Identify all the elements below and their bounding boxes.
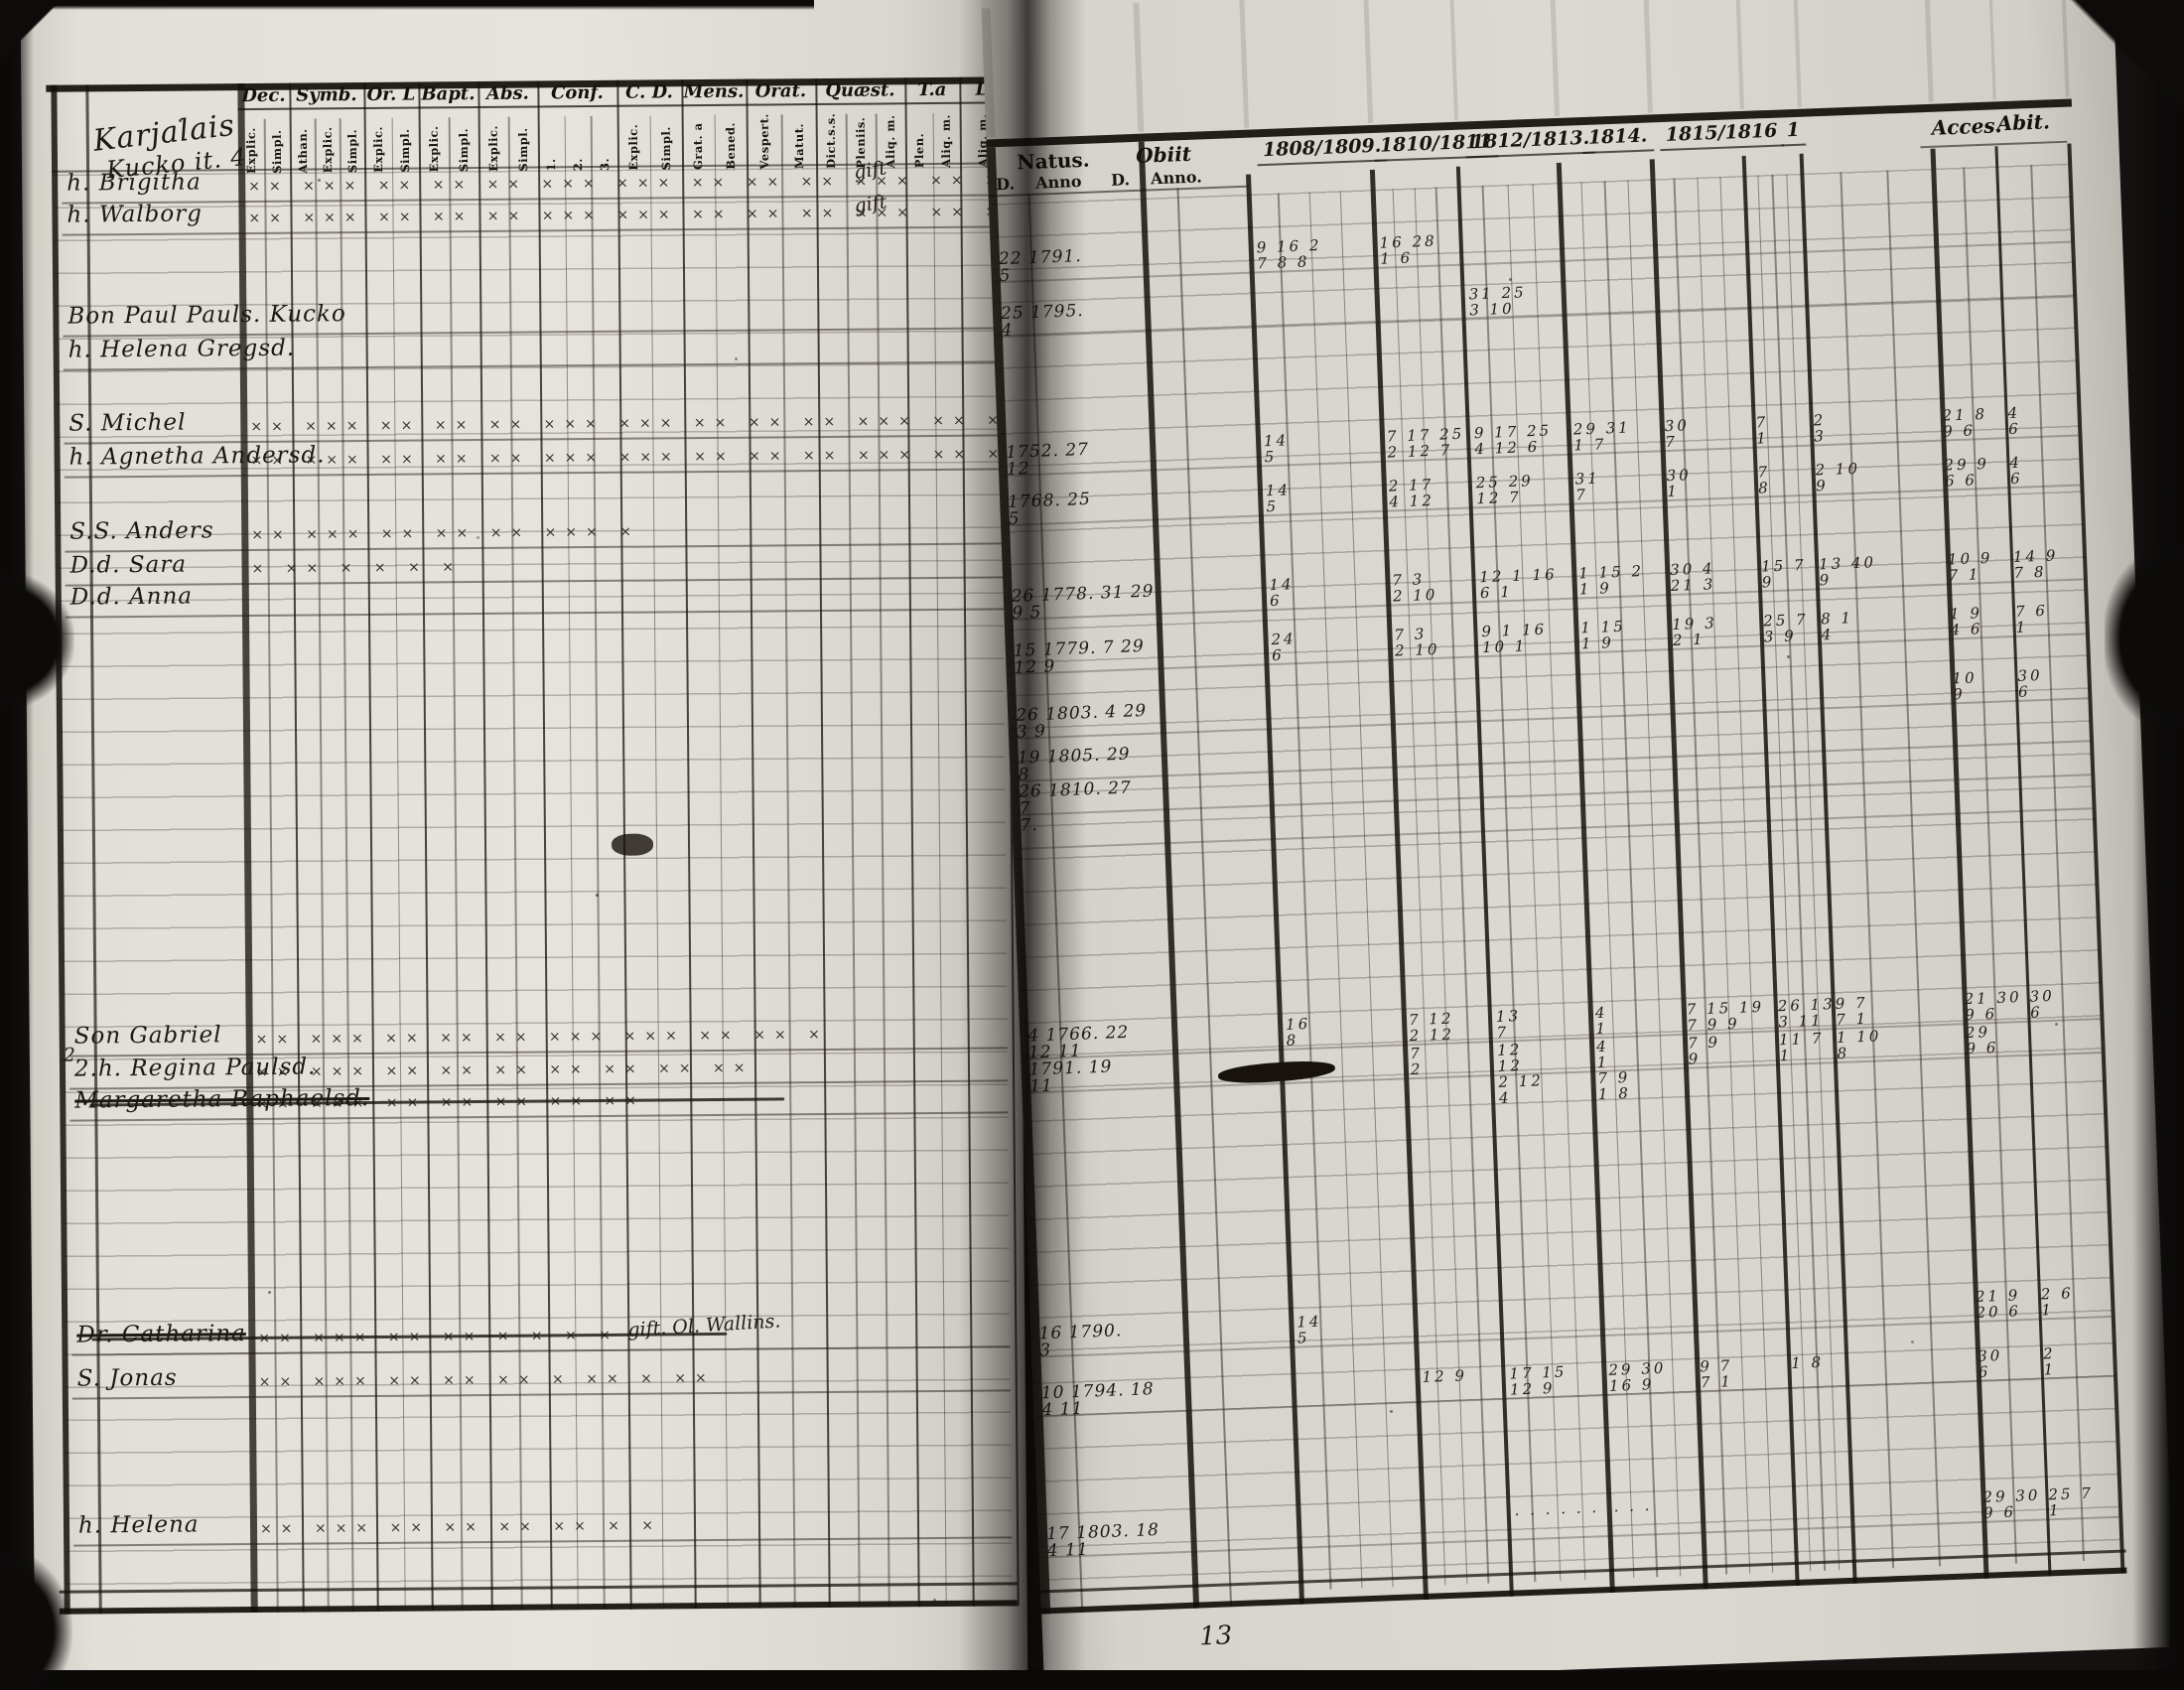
- natus-value: 7.: [1020, 817, 1038, 835]
- natus-value: 15 1779. 7 29 12 9: [1014, 638, 1146, 677]
- row-name: h. Helena: [78, 1512, 200, 1539]
- abit-value: 4 6: [2007, 405, 2021, 437]
- year-cell-value: 9 7 7 1: [1700, 1357, 1733, 1390]
- acces-value: 29 9 6: [1966, 1024, 1999, 1056]
- year-cell-value: 14 5: [1264, 432, 1290, 465]
- subcolumn-label: Explic.: [626, 109, 641, 171]
- column-label: Abs.: [478, 82, 537, 108]
- column-group-symb: Symb. Athan.Explic.Simpl.: [289, 84, 364, 185]
- ghost-rule: [1924, 0, 1934, 102]
- subcolumn-label: Simpl.: [658, 108, 673, 170]
- row-name: D.d. Sara: [69, 552, 187, 579]
- abit-value: 25 7 1: [2048, 1485, 2095, 1519]
- abit-value: 2 1: [2043, 1345, 2057, 1377]
- column-label: Bapt.: [418, 83, 478, 109]
- row-name: h. Walborg: [67, 201, 203, 227]
- natus-value: 16 1790. 3: [1038, 1323, 1123, 1359]
- column-group-ta: T.a Plen.Aliq. m.: [904, 79, 960, 179]
- year-cell-value: 12 1 16 6 1: [1479, 566, 1558, 601]
- subcolumn-label: Explic.: [486, 110, 501, 172]
- row-name: D.d. Anna: [70, 584, 193, 611]
- acces-value: 29 9 6 6: [1944, 456, 1990, 490]
- year-cell-value: 19 3 2 1: [1672, 615, 1718, 648]
- year-cell-value: 30 1: [1666, 467, 1692, 499]
- year-cell-value: 26 13 3 11: [1777, 996, 1836, 1030]
- row-marks: ×× ××× ×× ×× ×× ××× ×: [251, 524, 640, 543]
- abit-value: 7 6 1: [2015, 603, 2049, 635]
- ghost-rule: [1449, 0, 1458, 120]
- column-label: Mens.: [681, 81, 746, 107]
- year-cell-value: 24 6: [1271, 631, 1297, 663]
- year-cell-value: 7 12 2 12: [1409, 1010, 1455, 1044]
- right-page: Natus. D. Anno Obiit D. Anno. 1808/1809.…: [981, 0, 2175, 1689]
- year-cell-value: 4 1: [1596, 1039, 1610, 1070]
- year-cell-value: 7 15 19 7 9 9: [1687, 999, 1765, 1034]
- year-cell-value: 7 2: [1410, 1046, 1424, 1077]
- row-name: h. Brigitha: [67, 169, 202, 196]
- year-cell-value: 12 9: [1422, 1367, 1467, 1385]
- column-group-conf: Conf. 1.2.3.: [537, 82, 617, 183]
- ghost-rule: [2061, 0, 2070, 97]
- row-name: S. Michel: [68, 410, 186, 437]
- year-cell-value: 2 12 4: [1498, 1072, 1545, 1106]
- scanned-register-spread: Karjalais Kucko it. 4 Dec. Explic.Simpl.…: [0, 0, 2184, 1690]
- subcolumn-label: Explic.: [320, 111, 335, 173]
- year-cell-value: 25 7 3 9: [1763, 612, 1810, 645]
- acces-value: 10 9: [1952, 669, 1978, 702]
- year-cell-value: 4 1: [1595, 1005, 1609, 1037]
- acces-value: 29 30 9 6: [1982, 1487, 2041, 1521]
- year-header-1812-1813: 1812/1813.: [1465, 127, 1596, 159]
- year-cell-value: 29 31 1 7: [1573, 419, 1632, 453]
- year-cell-value: 29 30 16 9: [1608, 1360, 1667, 1394]
- year-cell-value: 9 16 2 7 8 8: [1256, 237, 1322, 271]
- ghost-rule: [1793, 0, 1802, 107]
- year-cell-value: 30 4 21 3: [1670, 560, 1716, 594]
- column-group-abs: Abs. Explic.Simpl.: [478, 82, 538, 183]
- subcolumn-label: 1.: [544, 109, 559, 171]
- natus-value: 1791. 19 11: [1028, 1058, 1113, 1095]
- column-group-orat: Orat. Vespert.Matut.: [746, 80, 816, 181]
- year-header-next: 1: [1780, 119, 1806, 147]
- year-cell-value: 1 15 2 1 9: [1578, 563, 1645, 597]
- year-cell-value: 14 5: [1297, 1314, 1322, 1346]
- abit-value: 30 6: [2029, 988, 2055, 1021]
- year-cell-value: 2 10 9: [1815, 461, 1861, 494]
- subcolumn-label: Athan.: [295, 112, 310, 174]
- ghost-rule: [1735, 0, 1744, 109]
- year-cell-value: 25 29 12 7: [1476, 473, 1535, 506]
- acces-value: 21 8 9 6: [1942, 406, 1988, 440]
- left-page: Karjalais Kucko it. 4 Dec. Explic.Simpl.…: [21, 0, 1028, 1690]
- subcolumn-label: Aliq. m.: [939, 106, 954, 168]
- row-name: S. Jonas: [77, 1365, 178, 1392]
- year-cell-value: 30 7: [1664, 417, 1690, 450]
- year-header-1808-1809: 1808/1809.: [1257, 134, 1388, 166]
- year-cell-value: 7 1: [1755, 414, 1769, 446]
- year-cell-value: 13 40 9: [1819, 554, 1877, 588]
- year-cell-value: 7 9 9: [1688, 1034, 1721, 1066]
- subcolumn-label: Explic.: [370, 111, 385, 173]
- acces-value: 30 6: [1978, 1347, 2003, 1380]
- year-cell-value: 9 17 25 4 12 6: [1474, 422, 1553, 457]
- year-cell-value: 7 3 2 10: [1394, 626, 1440, 659]
- subcolumn-label: Plen.: [911, 106, 926, 168]
- row-name: 2.h. Regina Paulsd.: [74, 1054, 317, 1081]
- natus-value: 26 1778. 31 29 9 5: [1011, 584, 1155, 623]
- year-cell-value: 2 3: [1813, 412, 1827, 444]
- year-cell-value: 8 1 4: [1821, 610, 1854, 642]
- subcolumn-label: Grat. a: [691, 108, 706, 170]
- column-label: Quæst.: [815, 79, 904, 105]
- column-label: Orat.: [746, 80, 815, 106]
- ghost-rule: [1643, 0, 1653, 113]
- natus-value: 26 1810. 27 7: [1019, 780, 1133, 818]
- column-label: Symb.: [289, 84, 363, 110]
- column-label: T.a: [904, 79, 959, 104]
- year-cell-value: 16 8: [1286, 1016, 1311, 1049]
- abit-value: 14 9 7 8: [2013, 547, 2060, 581]
- year-cell-value: 12 12: [1497, 1042, 1523, 1074]
- column-label: Or. L: [363, 84, 418, 109]
- year-cell-value: 1 8: [1791, 1354, 1824, 1371]
- column-label: C. D.: [616, 81, 681, 107]
- year-cell-value: 7 8: [1757, 464, 1771, 495]
- subcolumn-label: Explic.: [427, 110, 442, 172]
- natus-value: 10 1794. 18 4 11: [1041, 1381, 1156, 1419]
- natus-value: 17 1803. 18 4 11: [1046, 1522, 1160, 1560]
- acces-value: 21 9 20 6: [1976, 1287, 2022, 1321]
- row-marks: × ×× × × × ×: [252, 559, 464, 577]
- year-cell-value: 11 7 1: [1779, 1031, 1826, 1064]
- year-cell-value: 14 5: [1266, 482, 1292, 514]
- year-cell-value: 7 3 2 10: [1392, 571, 1438, 605]
- row-name: Son Gabriel: [74, 1022, 222, 1049]
- year-cell-value: 14 6: [1269, 576, 1295, 609]
- natus-value: 4 1766. 22 12 11: [1027, 1025, 1130, 1062]
- paper-speckles: [179, 119, 182, 122]
- year-cell-value: 7 9 1 8: [1597, 1069, 1631, 1102]
- subcolumn-label: Simpl.: [516, 110, 531, 172]
- year-cell-value: 31 25 3 10: [1468, 284, 1527, 318]
- subcolumn-label: Dict.s.s.: [824, 107, 839, 169]
- year-cell-value: 13 7: [1496, 1008, 1522, 1041]
- subcolumn-label: Simpl.: [398, 111, 413, 173]
- year-cell-value: 7 17 25 2 12 7: [1387, 426, 1465, 461]
- acces-header: Acces.: [1931, 113, 2002, 140]
- natus-value: 22 1791. 5: [999, 248, 1083, 285]
- row-name: S.S. Anders: [69, 517, 214, 544]
- obiit-sub-d: D.: [1111, 170, 1131, 190]
- abit-value: 4 6: [2009, 455, 2023, 487]
- ghost-rule: [1133, 3, 1144, 132]
- year-cell-value: 9 7 7 1: [1835, 995, 1868, 1028]
- row-name: Bon Paul Pauls. Kucko: [68, 301, 346, 329]
- natus-header: Natus.: [1017, 148, 1090, 175]
- page-number: 13: [1199, 1620, 1233, 1651]
- year-header-1814: 1814.: [1581, 124, 1653, 154]
- ghost-rule: [1363, 0, 1373, 123]
- column-label: Dec.: [237, 85, 289, 110]
- natus-value: 26 1803. 4 29 3 9: [1016, 703, 1148, 742]
- column-group-cd: C. D. Explic.Simpl.: [616, 81, 682, 182]
- ghost-rule: [1239, 0, 1249, 128]
- year-cell-value: 17 15 12 9: [1509, 1363, 1568, 1397]
- row-name: h. Helena Gregsd.: [68, 336, 296, 363]
- subcolumn-label: Simpl.: [270, 112, 285, 174]
- year-cell-value: · · ·: [1613, 1501, 1652, 1518]
- column-group-bapt: Bapt. Explic.Simpl.: [418, 83, 478, 184]
- subcolumn-label: Simpl.: [344, 111, 359, 173]
- natus-value: 25 1795. 4: [1001, 303, 1085, 340]
- year-cell-value: 16 28 1 6: [1379, 233, 1437, 267]
- ghost-rule: [1988, 0, 1996, 99]
- natus-sub-anno: Anno: [1035, 172, 1082, 193]
- obiit-sub-anno: Anno.: [1151, 167, 1202, 188]
- row-name: Dr. Catharina: [76, 1321, 246, 1347]
- column-label: Conf.: [537, 82, 616, 108]
- year-cell-value: 9 1 16 10 1: [1481, 622, 1548, 655]
- natus-value: 1768. 25 5: [1008, 492, 1092, 528]
- year-cell-value: 1 15 1 9: [1580, 619, 1627, 652]
- year-cell-value: · · · · · ·: [1515, 1503, 1600, 1522]
- year-header-1815-1816: 1815/1816: [1659, 119, 1784, 151]
- natus-sub-d: D.: [996, 175, 1016, 195]
- acces-value: 1 9 4 6: [1950, 605, 1983, 637]
- ink-smudge: [612, 834, 653, 856]
- obiit-header: Obiit: [1136, 142, 1192, 168]
- year-cell-value: 31 7: [1574, 471, 1600, 503]
- column-group-orl: Or. L Explic.Simpl.: [363, 84, 419, 184]
- ghost-rule: [1550, 0, 1560, 116]
- year-cell-value: 1 10 8: [1837, 1028, 1883, 1061]
- subcolumn-label: Bened.: [723, 108, 738, 170]
- row-name: Margaretha Raphaelsd.: [74, 1085, 369, 1114]
- year-cell-value: 2 17 4 12: [1389, 477, 1435, 510]
- abit-header: Abit.: [1996, 109, 2050, 135]
- year-cell-value: 15 7 9: [1761, 557, 1808, 591]
- column-group-mens: Mens. Grat. aBened.: [681, 81, 747, 182]
- abit-value: 2 6 1: [2041, 1285, 2075, 1318]
- acces-value: 10 9 7 1: [1948, 550, 1994, 584]
- subcolumn-label: Vespert.: [756, 107, 771, 169]
- subcolumn-label: Matut.: [791, 107, 806, 169]
- subcolumn-label: 3.: [597, 109, 612, 171]
- subcolumn-label: Simpl.: [457, 110, 472, 172]
- row-name: h. Agnetha Andersd.: [68, 442, 325, 470]
- abit-value: 30 6: [2017, 667, 2043, 700]
- natus-value: 1752. 27 12: [1006, 442, 1090, 479]
- subcolumn-label: 2.: [571, 109, 586, 171]
- acces-value: 21 30 9 6: [1964, 989, 2022, 1023]
